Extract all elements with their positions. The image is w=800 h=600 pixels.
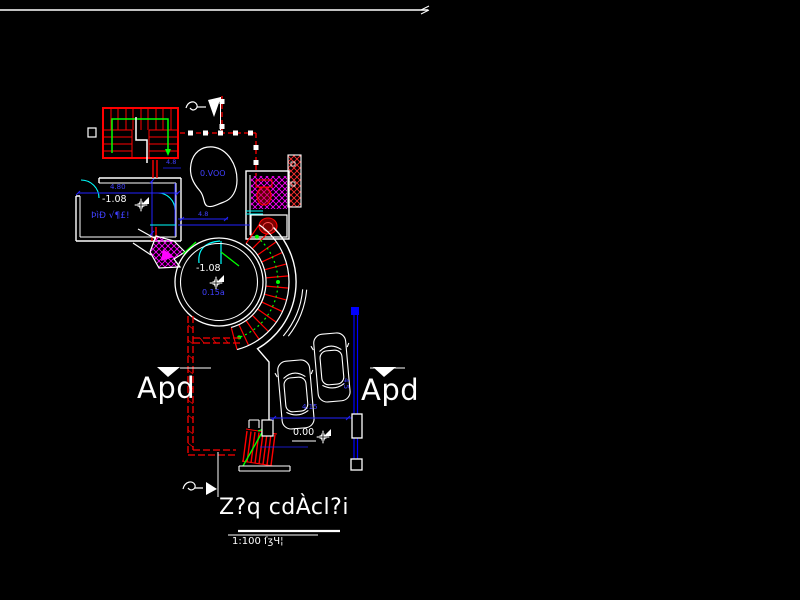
floor-plan-drawing: [0, 0, 800, 600]
title-underline: [228, 531, 340, 535]
bathroom: [246, 155, 301, 239]
column-marker: [88, 128, 96, 137]
room-level-label: -1.08: [102, 195, 127, 205]
drawing-scale-note: 1:100 ſʒЧ¦: [232, 537, 284, 547]
hall-top-lines: [150, 217, 250, 225]
parking-height-dim-label: 4.5: [342, 378, 349, 389]
room-width-dim-label: 4.80: [110, 184, 126, 191]
hall-level-label: -1.08: [196, 264, 221, 274]
bedroom-doors: [81, 180, 175, 210]
grid-axis-lines: [180, 96, 259, 176]
car: [274, 359, 318, 430]
outer-curved-wall: [258, 228, 307, 425]
hall-name-label: 0.15a: [202, 289, 225, 297]
drawing-title: Z?q cdÀcl?i: [219, 497, 349, 519]
section-label-left: Apd: [137, 374, 195, 403]
room-small-dim-label: 4.8: [166, 159, 176, 166]
bottom-section-symbol: [183, 452, 218, 497]
mid-dim-label: 4.8: [198, 211, 208, 218]
upper-stair: [103, 108, 178, 163]
top-border-line: [0, 6, 429, 14]
room-name-label: ÞìÐ √¶£!: [91, 212, 130, 221]
bedroom-walls: [76, 160, 181, 241]
planter-walls: [188, 316, 240, 455]
parking-width-dim-label: 4.15: [302, 404, 318, 411]
ground-level-label: 0.00: [293, 428, 314, 438]
cad-canvas[interactable]: 4.80 4.8 -1.08 ÞìÐ √¶£! 0.VOO 4.8 -1.08 …: [0, 0, 800, 600]
car: [310, 332, 354, 403]
section-label-right: Apd: [361, 376, 419, 405]
entrance-pad: [133, 229, 185, 268]
lower-stair: [239, 420, 290, 471]
north-flag-symbol: [186, 97, 221, 130]
garden-label: 0.VOO: [200, 170, 226, 178]
